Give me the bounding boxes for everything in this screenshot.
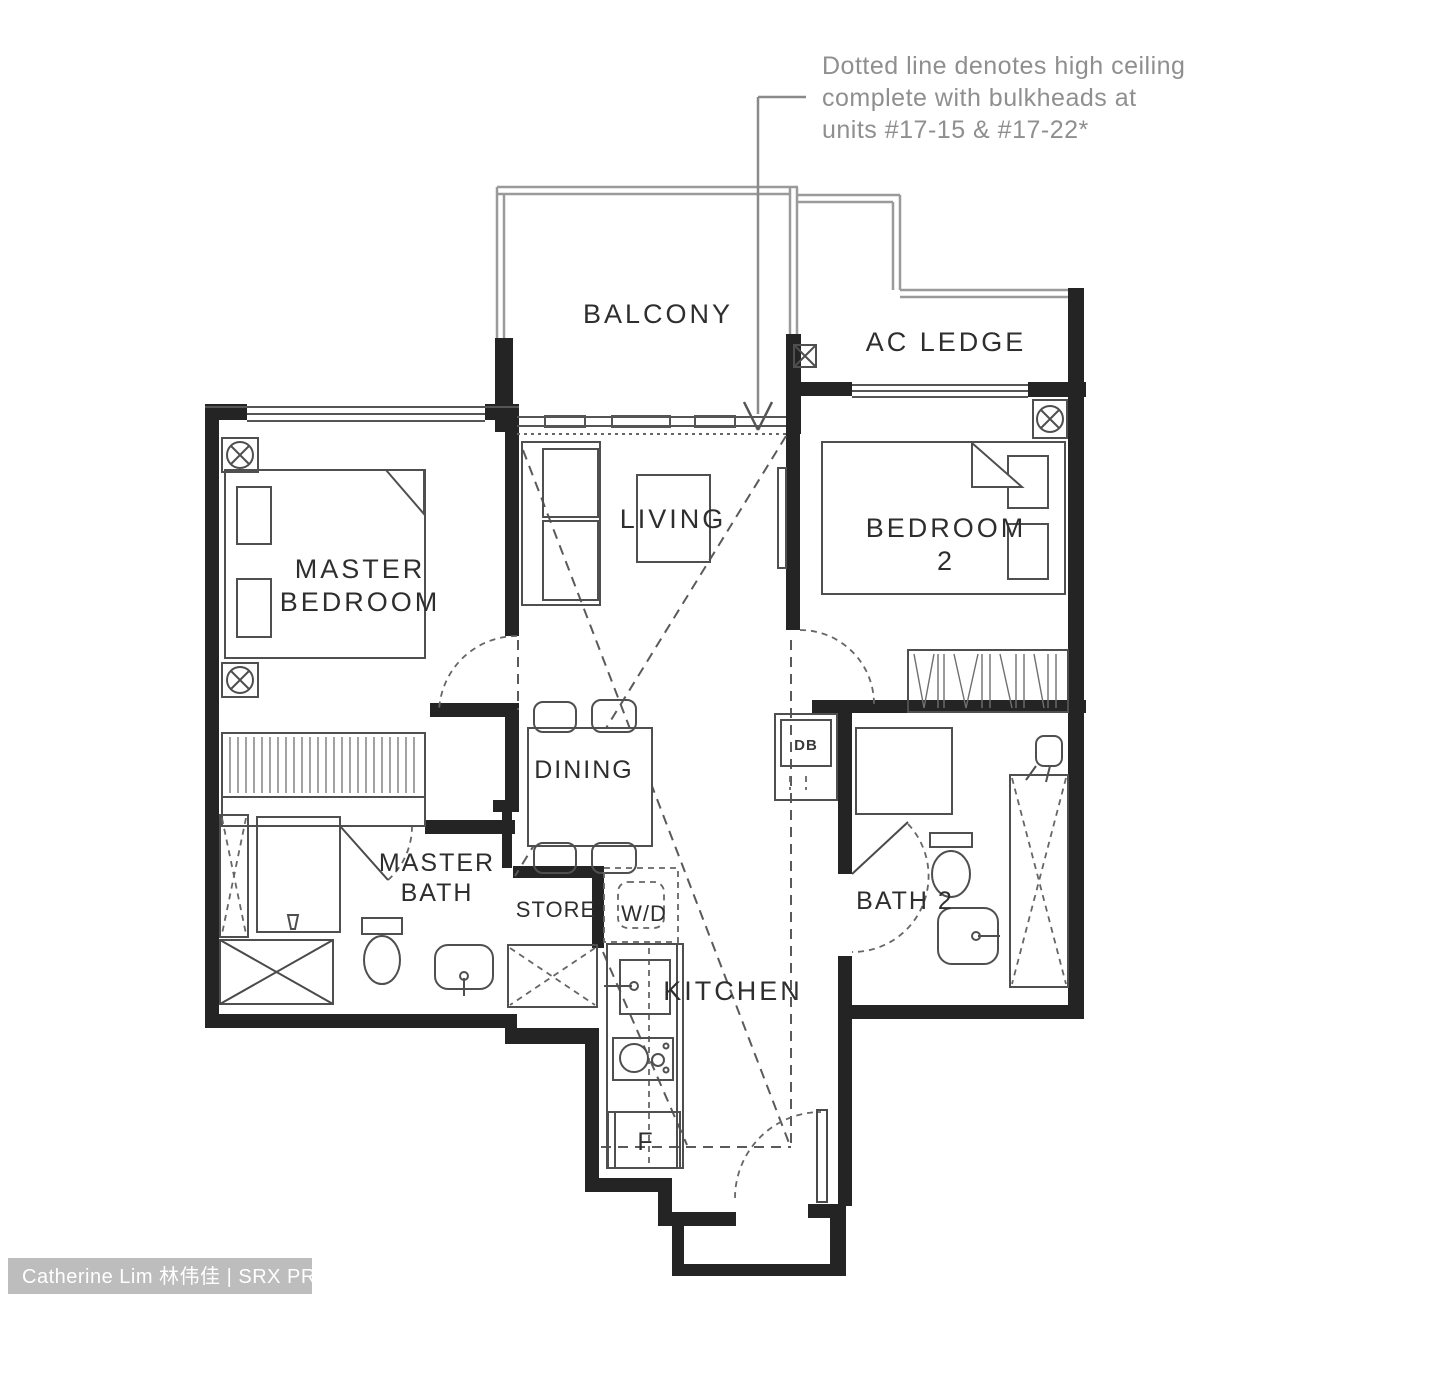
master-bedroom-label-2: BEDROOM bbox=[280, 587, 441, 617]
toilet-tank bbox=[930, 833, 972, 847]
master-bedroom-window bbox=[205, 407, 519, 421]
master-bedroom-furniture bbox=[222, 470, 425, 826]
bedroom2-label-2: 2 bbox=[937, 546, 955, 576]
bath2-fixtures: DB bbox=[775, 714, 1068, 987]
kitchen-label: KITCHEN bbox=[663, 976, 803, 1006]
master-bedroom-door-arc bbox=[439, 636, 517, 712]
cooktop bbox=[613, 1038, 673, 1080]
ac-ledge-label: AC LEDGE bbox=[866, 327, 1027, 357]
master-bedroom-label-1: MASTER bbox=[295, 554, 426, 584]
pillow bbox=[237, 487, 271, 544]
master-bath-label-1: MASTER bbox=[379, 849, 495, 877]
annotation-line-2: complete with bulkheads at bbox=[822, 84, 1137, 112]
annotation-line-3: units #17-15 & #17-22* bbox=[822, 116, 1089, 144]
dining-table bbox=[528, 728, 652, 846]
wardrobe-hatch bbox=[230, 737, 414, 793]
shower-head-icon bbox=[288, 915, 298, 929]
annotation-line-1: Dotted line denotes high ceiling bbox=[822, 52, 1185, 80]
floor-plan-page: DB BALCONY AC LEDGE MASTER bbox=[0, 0, 1440, 1399]
blanket-fold bbox=[972, 443, 1022, 487]
sofa-cushion bbox=[543, 449, 598, 517]
floor-plan-drawing: DB BALCONY AC LEDGE MASTER bbox=[0, 0, 1440, 1399]
toilet-bowl bbox=[364, 936, 400, 984]
watermark: Catherine Lim 林伟佳 | SRX PROPERTY bbox=[8, 1258, 401, 1294]
bedroom2-window bbox=[852, 385, 1028, 397]
sofa-cushion bbox=[543, 521, 598, 600]
watermark-label: Catherine Lim 林伟佳 | SRX PROPERTY bbox=[22, 1265, 401, 1288]
bedroom2-label-1: BEDROOM bbox=[866, 513, 1027, 543]
windows bbox=[205, 385, 1028, 434]
entry-door-arc bbox=[735, 1112, 821, 1198]
bedroom2-door-arc bbox=[800, 630, 874, 704]
bedroom2-furniture bbox=[822, 442, 1068, 712]
wd-label: W/D bbox=[621, 901, 667, 926]
master-bath-label-2: BATH bbox=[401, 879, 474, 907]
db-box: DB bbox=[775, 714, 837, 800]
aircon-fan-coil-icon bbox=[222, 663, 258, 697]
dining-label: DINING bbox=[534, 756, 634, 784]
living-label: LIVING bbox=[620, 504, 727, 534]
entry-door-leaf bbox=[817, 1110, 827, 1202]
pillow bbox=[237, 579, 271, 637]
dining-furniture bbox=[528, 700, 652, 873]
tv-console bbox=[778, 468, 786, 568]
sofa bbox=[522, 442, 600, 605]
shower-ledge bbox=[1010, 775, 1068, 987]
bath2-closet bbox=[856, 728, 952, 814]
master-wardrobe bbox=[222, 733, 425, 826]
balcony-label: BALCONY bbox=[583, 299, 733, 329]
bath2-door-leaf bbox=[852, 822, 908, 874]
high-ceiling-annotation: Dotted line denotes high ceiling complet… bbox=[744, 52, 1185, 430]
blanket-fold bbox=[386, 470, 424, 514]
bath2-label: BATH 2 bbox=[856, 887, 954, 915]
fridge-label: F bbox=[637, 1128, 654, 1156]
db-label: DB bbox=[794, 737, 818, 754]
balcony-sliding-door bbox=[517, 417, 786, 426]
toilet-tank bbox=[362, 918, 402, 934]
aircon-fan-coil-icon bbox=[1033, 400, 1067, 438]
wardrobe-hatch bbox=[914, 654, 1056, 708]
aircon-fan-coil-icon bbox=[222, 438, 258, 472]
kitchen-sink bbox=[604, 960, 670, 1014]
store-label: STORE bbox=[516, 897, 596, 922]
